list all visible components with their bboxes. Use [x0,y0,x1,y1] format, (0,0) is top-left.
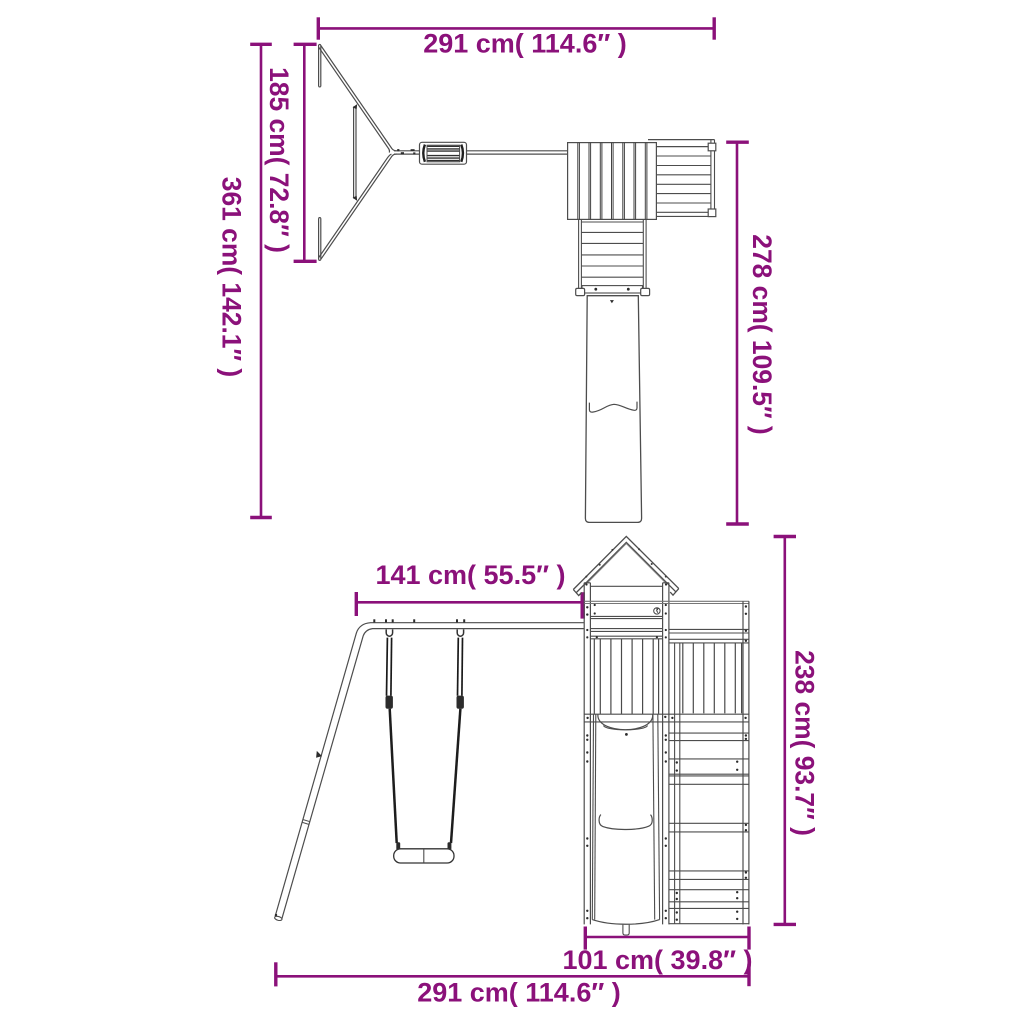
svg-text:101 cm( 39.8″ ): 101 cm( 39.8″ ) [562,945,752,975]
svg-text:361 cm( 142.1″ ): 361 cm( 142.1″ ) [217,177,247,377]
svg-text:278 cm( 109.5″ ): 278 cm( 109.5″ ) [747,234,777,434]
svg-text:238 cm( 93.7″ ): 238 cm( 93.7″ ) [790,650,820,836]
svg-text:291 cm( 114.6″ ): 291 cm( 114.6″ ) [417,977,621,1007]
svg-text:185 cm( 72.8″ ): 185 cm( 72.8″ ) [264,67,294,253]
svg-text:291 cm( 114.6″ ): 291 cm( 114.6″ ) [423,29,627,59]
svg-text:141 cm( 55.5″ ): 141 cm( 55.5″ ) [375,560,565,590]
